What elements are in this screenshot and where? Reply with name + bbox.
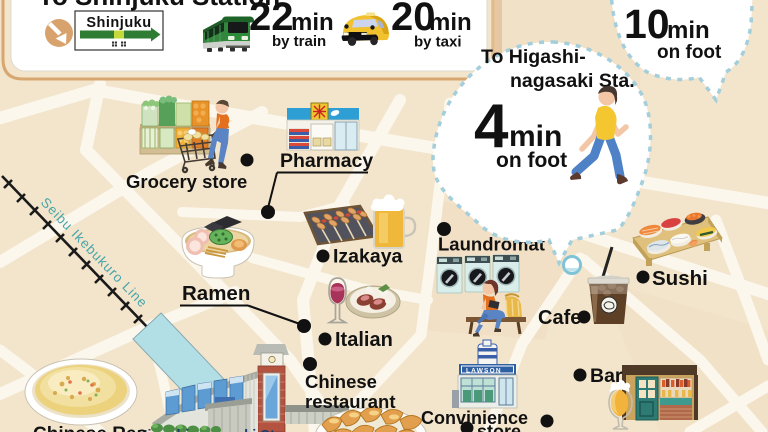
svg-text:LAWSON: LAWSON [466,368,502,375]
svg-text:min: min [291,9,334,36]
svg-text:To Higashi-: To Higashi- [481,46,586,68]
svg-text:10: 10 [624,1,670,47]
svg-text:Sushi: Sushi [652,267,708,290]
svg-text:Ramen: Ramen [182,282,250,305]
svg-text:To Shinjuku Station: To Shinjuku Station [38,0,280,11]
svg-text:Cafe: Cafe [538,307,581,329]
svg-text:min: min [667,17,710,44]
svg-text:by taxi: by taxi [414,34,462,51]
svg-text:min: min [429,9,472,36]
svg-text:restaurant: restaurant [305,391,395,412]
svg-text:Higashi-nagasaki Sta.: Higashi-nagasaki Sta. [137,428,287,432]
svg-text:Shinjuku: Shinjuku [86,15,151,31]
svg-text:nagasaki Sta.: nagasaki Sta. [510,70,635,92]
svg-text:Italian: Italian [335,329,393,351]
svg-text:on foot: on foot [496,149,567,172]
svg-text:on foot: on foot [657,42,722,63]
svg-text:Pharmacy: Pharmacy [280,150,373,172]
svg-text:Chinese Res: Chinese Res [33,424,147,432]
svg-text:Bar: Bar [590,365,623,387]
svg-text:by train: by train [272,33,326,50]
svg-text:Grocery store: Grocery store [126,171,247,192]
svg-text:Izakaya: Izakaya [333,246,403,268]
svg-text:Chinese: Chinese [305,371,377,392]
svg-text:store: store [477,422,521,432]
